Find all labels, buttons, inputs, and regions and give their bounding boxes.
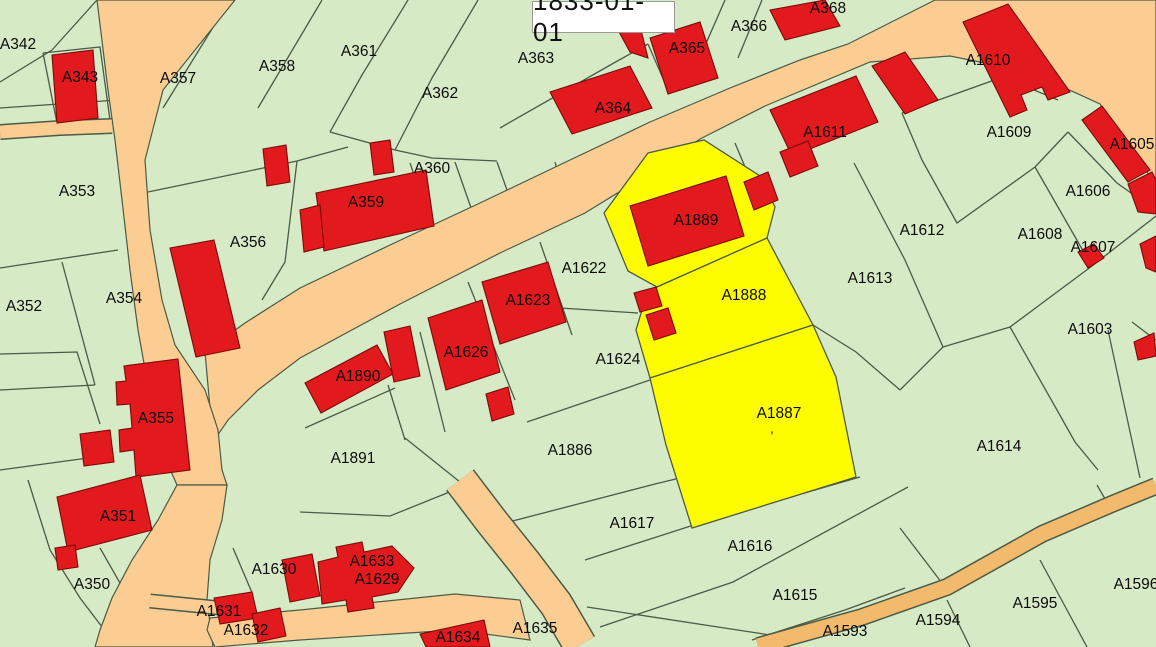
- parcel-label-A360: A360: [414, 160, 451, 177]
- parcel-label-A342: A342: [0, 36, 36, 53]
- parcel-label-A368: A368: [810, 0, 846, 17]
- parcel-label-A1886: A1886: [548, 442, 593, 459]
- parcel-label-A363: A363: [518, 50, 554, 67]
- parcel-label-A1626: A1626: [444, 344, 489, 361]
- building: [55, 545, 78, 570]
- parcel-label-A355: A355: [138, 410, 174, 427]
- parcel-label-A1605: A1605: [1110, 136, 1155, 153]
- parcel-label-A365: A365: [669, 40, 705, 57]
- parcel-label-A1888: A1888: [722, 287, 767, 304]
- map-viewport[interactable]: A342A343A357A358A361A362A363A364A365A366…: [0, 0, 1156, 647]
- map-date-badge: 1833-01-01: [532, 1, 675, 33]
- parcel-label-A1594: A1594: [916, 612, 961, 629]
- parcel-label-A1630: A1630: [252, 561, 297, 578]
- parcel-label-A343: A343: [62, 69, 98, 86]
- parcel-label-A362: A362: [422, 85, 458, 102]
- parcel-label-A1631: A1631: [197, 603, 242, 620]
- parcel-label-A356: A356: [230, 234, 266, 251]
- building: [370, 140, 394, 175]
- building: [263, 145, 290, 186]
- parcel-label-A361: A361: [341, 43, 377, 60]
- parcel-label-A1595: A1595: [1013, 595, 1058, 612]
- building: [80, 430, 114, 466]
- parcel-label-A1632: A1632: [224, 622, 269, 639]
- parcel-label-A1624: A1624: [596, 351, 641, 368]
- parcel-label-A350: A350: [74, 576, 111, 593]
- parcel-label-A1889: A1889: [674, 212, 719, 229]
- parcel-label-A1633: A1633: [350, 553, 395, 570]
- parcel-label-A1614: A1614: [977, 438, 1022, 455]
- parcel-label-A1608: A1608: [1018, 226, 1063, 243]
- parcel-label-A1596: A1596: [1114, 576, 1156, 593]
- parcel-label-A1609: A1609: [987, 124, 1032, 141]
- parcel-label-A364: A364: [595, 100, 632, 117]
- building: [300, 205, 324, 252]
- parcel-label-A1629: A1629: [355, 571, 400, 588]
- parcel-label-A1606: A1606: [1066, 183, 1111, 200]
- parcel-label-A352: A352: [6, 298, 42, 315]
- parcel-label-A359: A359: [348, 194, 384, 211]
- parcel-label-A1634: A1634: [436, 629, 481, 646]
- parcel-label-A1890: A1890: [336, 368, 381, 385]
- parcel-label-A357: A357: [160, 70, 196, 87]
- map-date-text: 1833-01-01: [533, 0, 674, 48]
- parcel-label-A1617: A1617: [610, 515, 655, 532]
- road-spur-west: [0, 126, 112, 132]
- cadastral-map[interactable]: A342A343A357A358A361A362A363A364A365A366…: [0, 0, 1156, 647]
- parcel-label-A1603: A1603: [1068, 321, 1113, 338]
- parcel-label-’: ’: [771, 428, 774, 443]
- parcel-label-A1611: A1611: [803, 124, 847, 141]
- parcel-label-A1635: A1635: [513, 620, 558, 637]
- parcel-label-A1615: A1615: [773, 587, 818, 604]
- parcel-label-A1623: A1623: [506, 292, 551, 309]
- parcel-label-A1616: A1616: [728, 538, 773, 555]
- parcel-label-A1887: A1887: [757, 405, 802, 422]
- parcel-label-A358: A358: [259, 58, 295, 75]
- parcel-label-A354: A354: [106, 290, 143, 307]
- parcel-label-A1622: A1622: [562, 260, 607, 277]
- parcel-label-A351: A351: [100, 508, 136, 525]
- parcel-label-A1891: A1891: [331, 450, 376, 467]
- parcel-label-A353: A353: [59, 183, 95, 200]
- parcel-label-A1613: A1613: [848, 270, 893, 287]
- parcel-label-A1593: A1593: [823, 623, 868, 640]
- parcel-label-A1612: A1612: [900, 222, 945, 239]
- parcel-label-A366: A366: [731, 18, 767, 35]
- parcel-label-A1607: A1607: [1071, 239, 1116, 256]
- building: [52, 50, 98, 123]
- parcel-label-A1610: A1610: [966, 52, 1011, 69]
